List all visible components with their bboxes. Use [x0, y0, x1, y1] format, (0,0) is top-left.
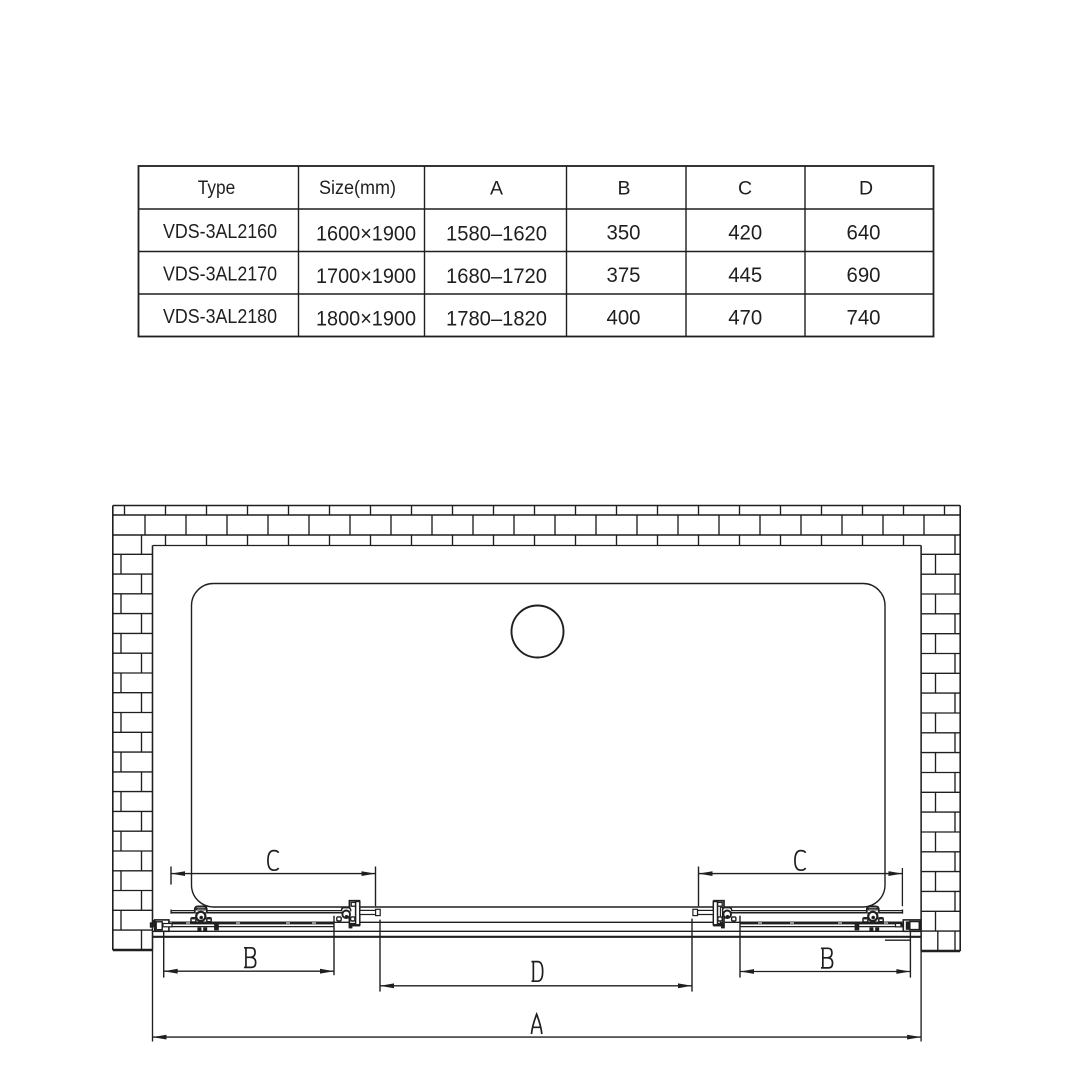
svg-text:400: 400 — [607, 306, 641, 329]
svg-text:1600×1900: 1600×1900 — [316, 222, 416, 245]
svg-text:Size(mm): Size(mm) — [319, 178, 396, 199]
svg-text:Type: Type — [198, 178, 236, 199]
svg-text:VDS-3AL2160: VDS-3AL2160 — [163, 221, 277, 243]
svg-text:375: 375 — [607, 264, 641, 287]
svg-text:VDS-3AL2170: VDS-3AL2170 — [163, 263, 277, 285]
svg-text:A: A — [490, 178, 503, 200]
svg-text:445: 445 — [728, 264, 762, 287]
svg-text:420: 420 — [728, 221, 762, 244]
svg-text:350: 350 — [607, 221, 641, 244]
svg-text:1780–1820: 1780–1820 — [446, 307, 547, 330]
svg-text:690: 690 — [847, 264, 881, 287]
svg-text:VDS-3AL2180: VDS-3AL2180 — [163, 306, 277, 328]
svg-text:C: C — [738, 178, 752, 200]
svg-text:D: D — [859, 178, 873, 200]
svg-text:B: B — [617, 178, 630, 200]
svg-text:740: 740 — [847, 306, 881, 329]
svg-text:1680–1720: 1680–1720 — [446, 265, 547, 288]
svg-text:1580–1620: 1580–1620 — [446, 222, 547, 245]
svg-text:1700×1900: 1700×1900 — [316, 265, 416, 288]
svg-text:1800×1900: 1800×1900 — [316, 307, 416, 330]
svg-text:470: 470 — [728, 306, 762, 329]
svg-text:640: 640 — [847, 221, 881, 244]
